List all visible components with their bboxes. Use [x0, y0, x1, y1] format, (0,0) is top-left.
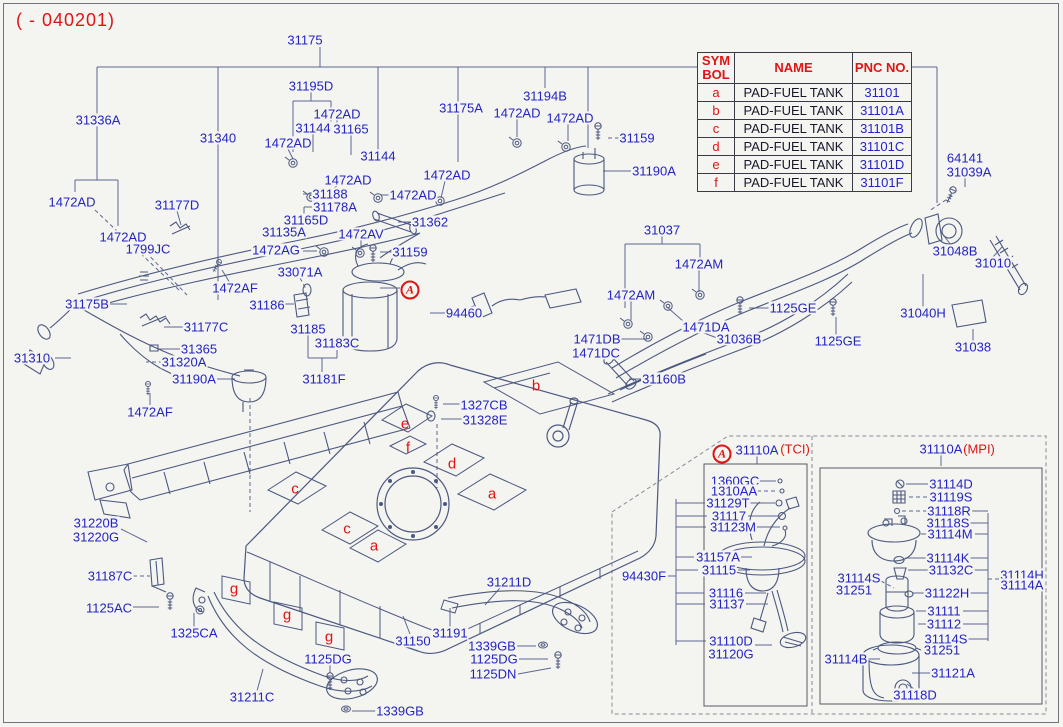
- part-label-1472AD: 1472AD: [423, 168, 472, 181]
- name-cell: PAD-FUEL TANK: [735, 102, 853, 120]
- part-label-31251: 31251: [923, 643, 961, 656]
- part-label-31181F: 31181F: [301, 372, 346, 385]
- part-label-33071A: 33071A: [277, 265, 324, 278]
- tank-symbol-c: c: [291, 482, 299, 497]
- part-label-31122H: 31122H: [924, 586, 971, 599]
- table-row: b PAD-FUEL TANK 31101A: [698, 102, 912, 120]
- symbol-cell: e: [698, 156, 735, 174]
- parts-diagram-page: ( - 040201) SYM BOL NAME PNC NO. a PAD-F…: [0, 0, 1063, 727]
- part-label-1472AF: 1472AF: [211, 281, 259, 294]
- table-row: d PAD-FUEL TANK 31101C: [698, 138, 912, 156]
- part-label-1471DB: 1471DB: [573, 332, 622, 345]
- pnc-cell: 31101D: [853, 156, 912, 174]
- part-label-31118D: 31118D: [892, 688, 938, 701]
- part-label-31038: 31038: [954, 340, 992, 353]
- symbol-cell: c: [698, 120, 735, 138]
- mpi-callout-part-no: 31110A: [919, 442, 964, 455]
- part-label-1472AM: 1472AM: [674, 257, 724, 270]
- part-label-31165: 31165: [332, 122, 369, 135]
- part-label-31185: 31185: [289, 322, 326, 335]
- part-label-1472AD: 1472AD: [389, 188, 438, 201]
- part-label-31320A: 31320A: [161, 355, 208, 368]
- part-label-1327CB: 1327CB: [460, 398, 509, 411]
- pnc-table: SYM BOL NAME PNC NO. a PAD-FUEL TANK 311…: [697, 52, 912, 192]
- part-label-31190A: 31190A: [631, 164, 677, 177]
- part-label-1472AD: 1472AD: [546, 111, 595, 124]
- tank-symbol-a: a: [488, 487, 496, 502]
- part-label-31160B: 31160B: [641, 372, 687, 385]
- tci-callout-part-no: 31110A: [735, 443, 780, 456]
- name-cell: PAD-FUEL TANK: [735, 156, 853, 174]
- mpi-callout-variant: (MPI): [962, 442, 996, 455]
- col-header-symbol: SYM BOL: [698, 53, 735, 84]
- part-label-1472AD: 1472AD: [48, 195, 97, 208]
- part-label-31177C: 31177C: [183, 320, 230, 333]
- part-label-31144: 31144: [359, 149, 396, 162]
- part-label-31010: 31010: [974, 256, 1012, 269]
- pnc-cell: 31101A: [853, 102, 912, 120]
- part-label-31177D: 31177D: [154, 198, 201, 211]
- leader-lines-dashed: [95, 138, 1000, 588]
- table-row: f PAD-FUEL TANK 31101F: [698, 174, 912, 192]
- tank-symbol-e: e: [401, 417, 409, 432]
- part-label-31187C: 31187C: [87, 569, 134, 582]
- part-label-31328E: 31328E: [462, 413, 509, 426]
- part-label-31175A: 31175A: [438, 101, 484, 114]
- part-label-1472AF: 1472AF: [126, 405, 174, 418]
- part-label-1472AM: 1472AM: [606, 288, 656, 301]
- col-header-name: NAME: [735, 53, 853, 84]
- part-label-31194B: 31194B: [522, 89, 568, 102]
- callout-dashed-border: [612, 436, 1046, 714]
- part-label-1125GE: 1125GE: [769, 301, 818, 314]
- part-label-31211D: 31211D: [486, 575, 533, 588]
- part-label-31220G: 31220G: [72, 530, 120, 543]
- part-label-1125DN: 1125DN: [469, 667, 518, 680]
- name-cell: PAD-FUEL TANK: [735, 120, 853, 138]
- part-label-1471DC: 1471DC: [571, 346, 621, 359]
- pnc-cell: 31101B: [853, 120, 912, 138]
- tank-symbol-b: b: [532, 379, 540, 394]
- part-label-31121A: 31121A: [930, 666, 976, 679]
- part-label-31175B: 31175B: [64, 297, 110, 310]
- part-label-1472AD: 1472AD: [493, 106, 542, 119]
- part-label-1339GB: 1339GB: [375, 704, 425, 717]
- symbol-cell: d: [698, 138, 735, 156]
- assembly-ref-marker: A: [713, 445, 732, 464]
- part-label-31183C: 31183C: [314, 336, 361, 349]
- tci-callout-variant: (TCI): [779, 442, 811, 455]
- part-label-31123M: 31123M: [709, 520, 757, 533]
- part-label-31114B: 31114B: [824, 652, 869, 665]
- symbol-cell: b: [698, 102, 735, 120]
- part-label-31048B: 31048B: [932, 244, 979, 257]
- part-label-1325CA: 1325CA: [170, 626, 219, 639]
- part-label-94430F: 94430F: [621, 569, 667, 582]
- tank-symbol-c: c: [343, 522, 351, 537]
- tank-symbol-g: g: [325, 630, 333, 645]
- part-label-31144: 31144: [294, 121, 331, 134]
- tank-symbol-a: a: [370, 539, 378, 554]
- part-label-1472AD: 1472AD: [324, 173, 373, 186]
- part-label-31132C: 31132C: [928, 563, 975, 576]
- tank-symbol-f: f: [406, 441, 410, 456]
- pnc-cell: 31101: [853, 84, 912, 102]
- symbol-cell: f: [698, 174, 735, 192]
- part-label-1472AD: 1472AD: [313, 107, 362, 120]
- name-cell: PAD-FUEL TANK: [735, 84, 853, 102]
- part-label-31119S: 31119S: [929, 490, 974, 503]
- part-label-31040H: 31040H: [899, 306, 947, 319]
- part-label-31112: 31112: [926, 617, 962, 630]
- part-label-94460: 94460: [445, 306, 483, 319]
- part-label-1472AD: 1472AD: [264, 136, 313, 149]
- pnc-cell: 31101C: [853, 138, 912, 156]
- part-label-1472AG: 1472AG: [251, 243, 301, 256]
- part-label-1472AV: 1472AV: [337, 227, 384, 240]
- part-label-31039A: 31039A: [946, 165, 993, 178]
- part-label-1799JC: 1799JC: [125, 242, 172, 255]
- part-label-31120G: 31120G: [707, 647, 754, 660]
- table-row: e PAD-FUEL TANK 31101D: [698, 156, 912, 174]
- tank-symbol-g: g: [230, 582, 238, 597]
- revision-code: ( - 040201): [16, 10, 115, 31]
- part-label-31310: 31310: [13, 351, 51, 364]
- table-row: a PAD-FUEL TANK 31101: [698, 84, 912, 102]
- hardware-glyphs: [145, 123, 957, 712]
- fuel-lines-drawing: [24, 146, 586, 378]
- part-label-31114A: 31114A: [1000, 578, 1045, 591]
- name-cell: PAD-FUEL TANK: [735, 138, 853, 156]
- part-label-64141: 64141: [946, 151, 984, 164]
- part-label-31175: 31175: [286, 33, 323, 46]
- table-header-row: SYM BOL NAME PNC NO.: [698, 53, 912, 84]
- tank-symbol-d: d: [448, 457, 456, 472]
- part-label-31340: 31340: [199, 131, 237, 144]
- part-label-31191: 31191: [431, 626, 468, 639]
- assembly-ref-marker: A: [401, 281, 420, 300]
- tank-symbol-g: g: [283, 608, 291, 623]
- part-label-31195D: 31195D: [288, 79, 335, 92]
- table-row: c PAD-FUEL TANK 31101B: [698, 120, 912, 138]
- part-label-31036B: 31036B: [716, 332, 763, 345]
- part-label-31137: 31137: [708, 597, 745, 610]
- part-label-31150: 31150: [394, 634, 431, 647]
- name-cell: PAD-FUEL TANK: [735, 174, 853, 192]
- part-label-1125DG: 1125DG: [303, 652, 352, 665]
- part-label-31251: 31251: [835, 583, 873, 596]
- part-label-31362: 31362: [411, 215, 449, 228]
- part-label-31211C: 31211C: [229, 690, 276, 703]
- part-label-31037: 31037: [643, 223, 681, 236]
- part-label-31114M: 31114M: [926, 527, 973, 540]
- part-label-1125GE: 1125GE: [814, 334, 863, 347]
- part-label-31115: 31115: [701, 563, 737, 576]
- part-label-1125DG: 1125DG: [469, 652, 518, 665]
- part-label-31336A: 31336A: [75, 113, 122, 126]
- col-header-pnc: PNC NO.: [853, 53, 912, 84]
- part-label-31135A: 31135A: [261, 225, 307, 238]
- part-label-1125AC: 1125AC: [85, 601, 133, 614]
- part-label-31159: 31159: [391, 245, 428, 258]
- part-label-31159: 31159: [618, 131, 655, 144]
- part-label-31190A: 31190A: [171, 372, 217, 385]
- symbol-cell: a: [698, 84, 735, 102]
- pnc-cell: 31101F: [853, 174, 912, 192]
- part-label-31186: 31186: [248, 298, 285, 311]
- part-label-31220B: 31220B: [73, 516, 120, 529]
